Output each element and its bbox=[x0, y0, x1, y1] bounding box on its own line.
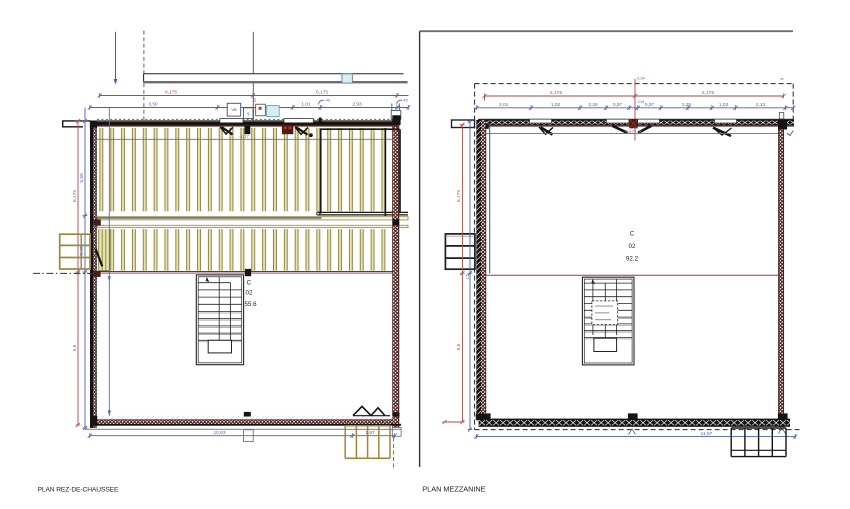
svg-text:1,97: 1,97 bbox=[365, 430, 375, 436]
svg-text:2,26: 2,26 bbox=[588, 102, 598, 108]
svg-text:2,01: 2,01 bbox=[499, 102, 509, 108]
svg-text:55.6: 55.6 bbox=[244, 301, 257, 308]
svg-text:g: g bbox=[780, 78, 784, 80]
svg-text:5,45: 5,45 bbox=[79, 246, 85, 256]
svg-text:g: g bbox=[247, 112, 249, 116]
svg-text:VB: VB bbox=[231, 107, 237, 112]
svg-text:5,5: 5,5 bbox=[456, 343, 462, 350]
svg-text:49: 49 bbox=[326, 99, 330, 103]
svg-text:1,02: 1,02 bbox=[551, 102, 561, 108]
svg-text:PLAN MEZZANINE: PLAN MEZZANINE bbox=[422, 484, 485, 493]
svg-text:1,5: 1,5 bbox=[465, 275, 469, 280]
svg-text:11,87: 11,87 bbox=[701, 431, 713, 437]
svg-text:2,93: 2,93 bbox=[352, 102, 362, 108]
svg-text:6,175: 6,175 bbox=[165, 90, 177, 96]
svg-text:1,01: 1,01 bbox=[301, 102, 311, 108]
svg-text:5,50: 5,50 bbox=[79, 173, 85, 183]
svg-text:6,175: 6,175 bbox=[702, 90, 714, 96]
svg-text:C: C bbox=[630, 231, 635, 238]
svg-text:0,97: 0,97 bbox=[613, 102, 623, 108]
svg-text:2,13: 2,13 bbox=[756, 102, 766, 108]
svg-text:5: 5 bbox=[253, 98, 256, 104]
svg-text:2,25: 2,25 bbox=[682, 102, 692, 108]
svg-text:PLAN REZ-DE-CHAUSSEE: PLAN REZ-DE-CHAUSSEE bbox=[38, 486, 119, 493]
svg-text:0,54: 0,54 bbox=[637, 77, 644, 81]
svg-text:92.2: 92.2 bbox=[626, 256, 639, 263]
svg-text:-1,17: -1,17 bbox=[239, 134, 249, 139]
svg-text:0,97: 0,97 bbox=[645, 102, 655, 108]
svg-text:10,93: 10,93 bbox=[213, 430, 225, 436]
svg-text:0,54: 0,54 bbox=[638, 100, 645, 104]
svg-text:02: 02 bbox=[246, 290, 253, 297]
svg-text:6,175: 6,175 bbox=[72, 190, 78, 202]
svg-text:3,50: 3,50 bbox=[148, 102, 158, 108]
svg-text:C: C bbox=[247, 280, 252, 287]
svg-text:49: 49 bbox=[403, 99, 407, 103]
svg-text:1,02: 1,02 bbox=[719, 102, 729, 108]
svg-text:5,5: 5,5 bbox=[72, 344, 78, 351]
svg-text:6,175: 6,175 bbox=[456, 190, 462, 202]
svg-text:02: 02 bbox=[629, 243, 636, 250]
svg-text:6,175: 6,175 bbox=[550, 90, 562, 96]
svg-text:6,175: 6,175 bbox=[316, 90, 328, 96]
